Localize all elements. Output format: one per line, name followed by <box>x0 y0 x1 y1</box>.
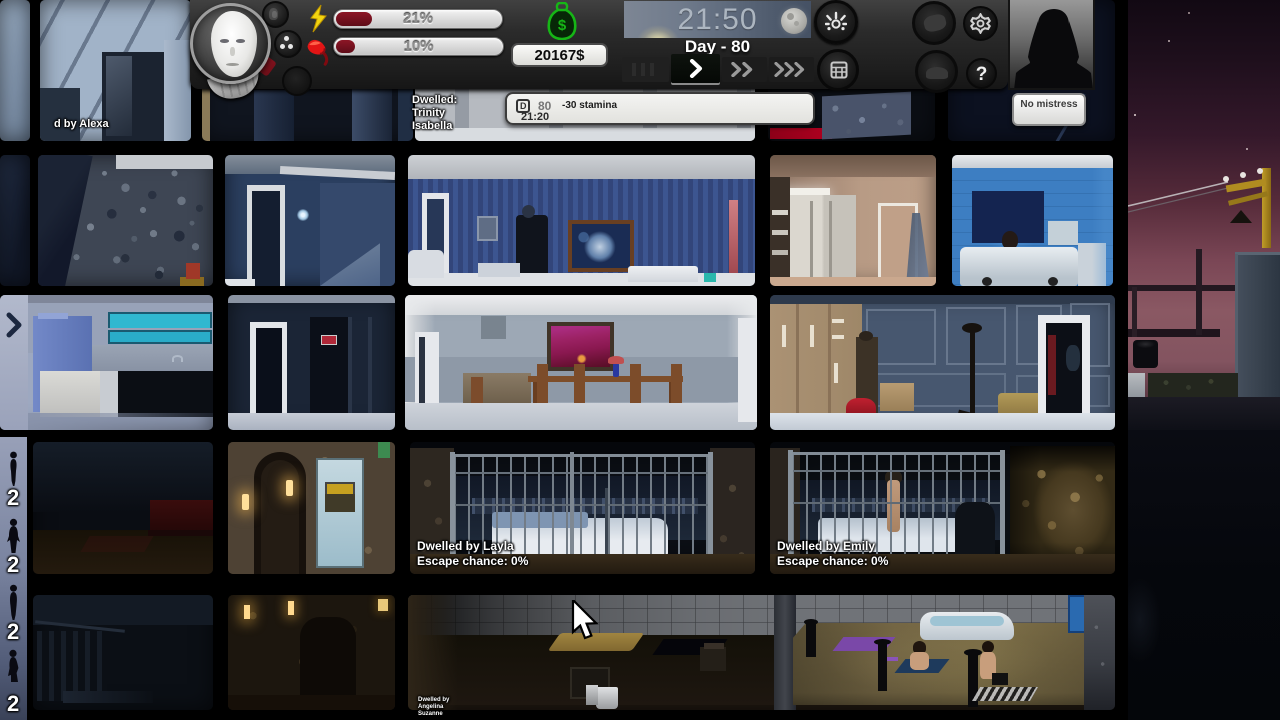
svg-text:$: $ <box>558 17 567 34</box>
